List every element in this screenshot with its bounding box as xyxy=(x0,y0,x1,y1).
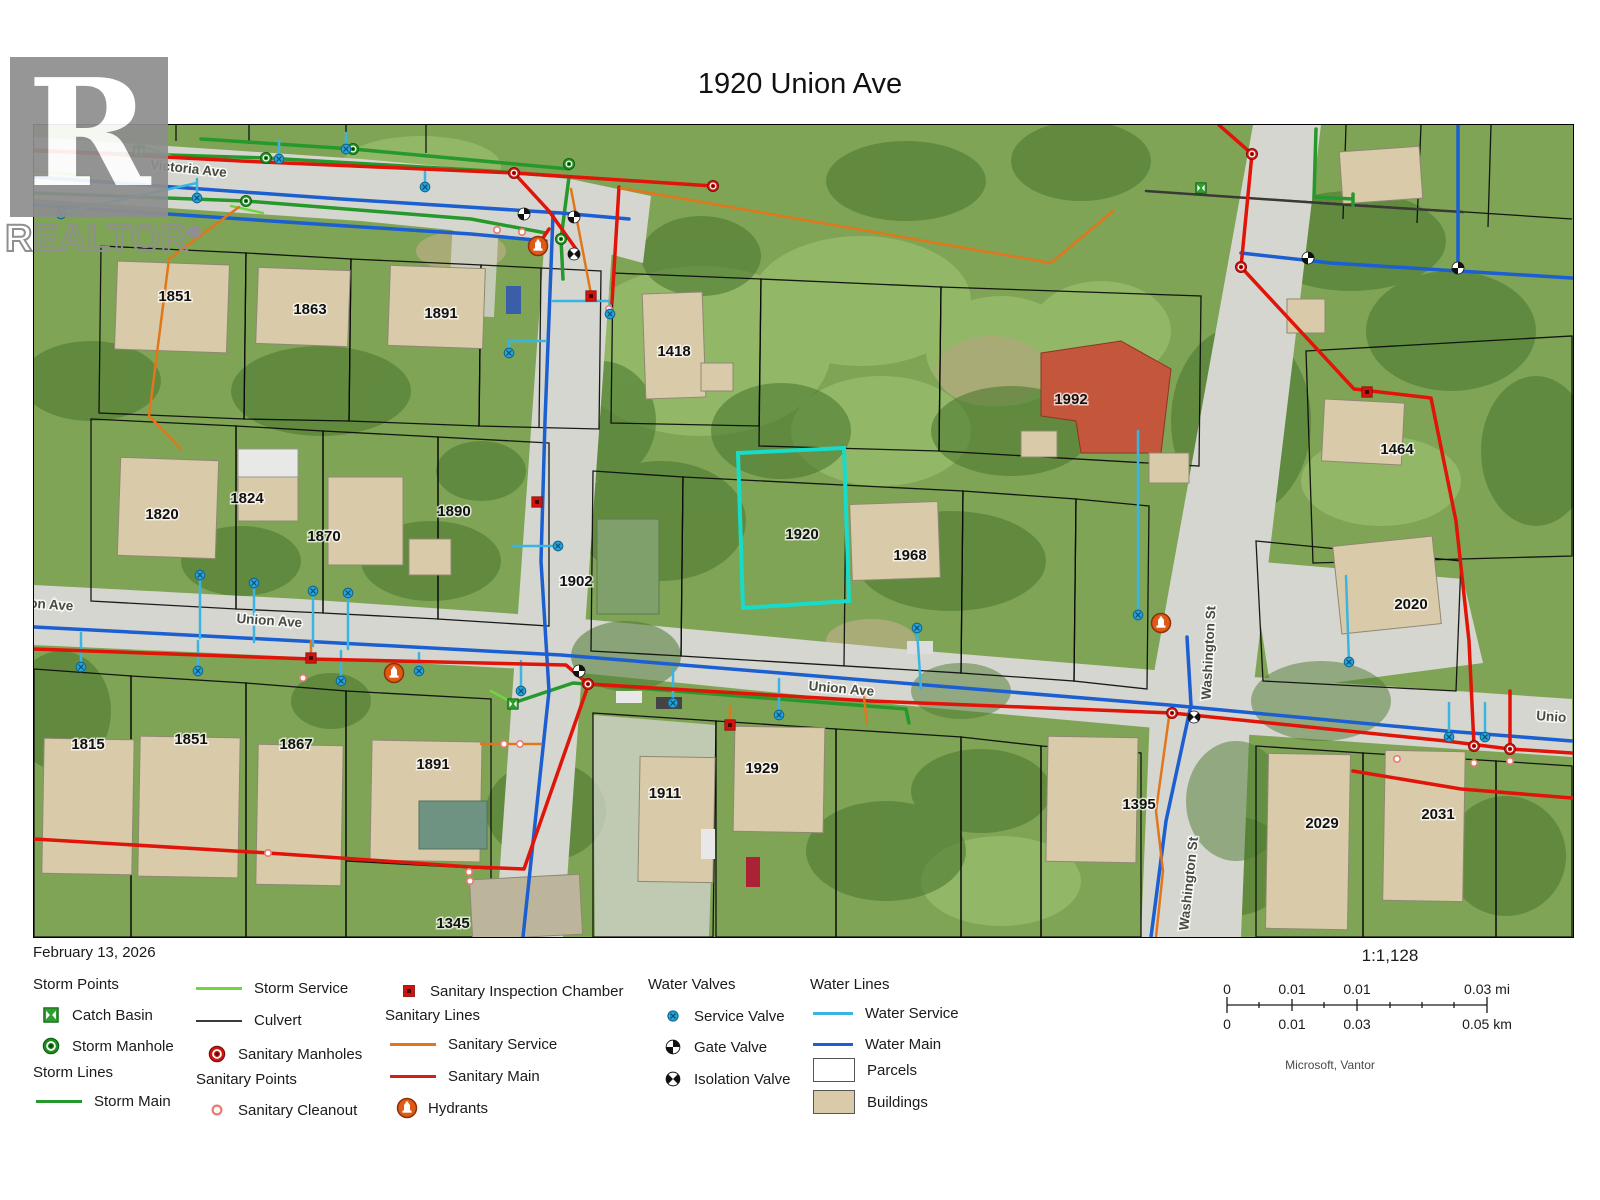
legend-item-sanitary-main: Sanitary Main xyxy=(390,1068,540,1085)
buildings-swatch xyxy=(813,1090,855,1114)
page-title: 1920 Union Ave xyxy=(0,68,1600,101)
parcel-number-label: 1891 xyxy=(424,305,457,322)
isolation-valve-icon xyxy=(1188,711,1200,723)
parcel-number-label: 1863 xyxy=(293,301,326,318)
parcel-number-label: 1418 xyxy=(657,343,690,360)
service-valve-icon xyxy=(605,309,615,319)
service-valve-icon xyxy=(1480,732,1490,742)
parcel-number-label: 2029 xyxy=(1305,815,1338,832)
storm-manhole-icon xyxy=(260,152,271,163)
sanitary-manhole-icon xyxy=(206,1043,228,1065)
svg-text:0.03 mi: 0.03 mi xyxy=(1464,981,1510,997)
isolation-valve-icon xyxy=(662,1068,684,1090)
storm-manhole-icon xyxy=(240,195,251,206)
legend-item-service-valve: Service Valve xyxy=(662,1005,785,1027)
svg-text:0.01: 0.01 xyxy=(1278,1016,1305,1032)
parcels-swatch xyxy=(813,1058,855,1082)
gate-valve-icon xyxy=(662,1036,684,1058)
legend-item-water-main: Water Main xyxy=(813,1036,941,1053)
parcel-number-label: 1891 xyxy=(416,756,449,773)
service-valve-icon xyxy=(414,666,424,676)
legend-heading-sanitary-lines: Sanitary Lines xyxy=(385,1007,480,1024)
parcel-number-label: 1395 xyxy=(1122,796,1155,813)
parcel-number-label: 1920 xyxy=(785,526,818,543)
sanitary-inspection-chamber-icon xyxy=(398,980,420,1002)
sanitary-manhole-icon xyxy=(707,180,718,191)
storm-manhole-icon xyxy=(40,1035,62,1057)
parcel-number-label: 1851 xyxy=(158,288,191,305)
sanitary-service-swatch xyxy=(390,1043,436,1046)
service-valve-icon xyxy=(195,570,205,580)
svg-text:0.05 km: 0.05 km xyxy=(1462,1016,1512,1032)
service-valve-icon xyxy=(1344,657,1354,667)
service-valve-icon xyxy=(516,686,526,696)
parcel-number-label: 1345 xyxy=(436,915,469,932)
service-valve-icon xyxy=(336,676,346,686)
cleanout-icon xyxy=(519,229,525,235)
legend-heading-sanitary-points: Sanitary Points xyxy=(196,1071,297,1088)
sanitary-main-swatch xyxy=(390,1075,436,1078)
legend-item-water-service: Water Service xyxy=(813,1005,959,1022)
realtor-logo: R xyxy=(10,57,168,217)
parcel-number-label: 1851 xyxy=(174,731,207,748)
service-valve-icon xyxy=(1133,610,1143,620)
service-valve-icon xyxy=(343,588,353,598)
street-label: Unio xyxy=(1536,708,1567,725)
svg-text:0: 0 xyxy=(1223,1016,1231,1032)
legend-item-sanitary-cleanout: Sanitary Cleanout xyxy=(206,1099,357,1121)
storm-service-swatch xyxy=(196,987,242,990)
inspection-chamber-icon xyxy=(1362,387,1372,397)
inspection-chamber-icon xyxy=(532,497,542,507)
service-valve-icon xyxy=(662,1005,684,1027)
legend-item-parcels: Parcels xyxy=(813,1058,917,1082)
parcel-number-label: 1824 xyxy=(230,490,264,507)
gate-valve-icon xyxy=(518,208,530,220)
service-valve-icon xyxy=(420,182,430,192)
cleanout-icon xyxy=(494,227,500,233)
parcel-number-label: 1815 xyxy=(71,736,104,753)
service-valve-icon xyxy=(504,348,514,358)
cleanout-icon xyxy=(517,741,523,747)
service-valve-icon xyxy=(76,662,86,672)
sanitary-manhole-icon xyxy=(1468,740,1479,751)
cleanout-icon xyxy=(1507,758,1513,764)
hydrant-icon xyxy=(396,1097,418,1119)
legend-heading-storm-points: Storm Points xyxy=(33,976,119,993)
sanitary-manhole-icon xyxy=(1166,707,1177,718)
parcel-number-label: 1911 xyxy=(649,785,682,802)
svg-text:0.03: 0.03 xyxy=(1343,1016,1370,1032)
water-main-swatch xyxy=(813,1043,853,1046)
water-service-swatch xyxy=(813,1012,853,1015)
svg-text:0: 0 xyxy=(1223,981,1231,997)
cleanout-icon xyxy=(467,878,473,884)
service-valve-icon xyxy=(774,710,784,720)
service-valve-icon xyxy=(249,578,259,588)
isolation-valve-icon xyxy=(568,248,580,260)
sanitary-cleanout-icon xyxy=(206,1099,228,1121)
parcel-number-label: 1968 xyxy=(893,547,926,564)
catch-basin-icon xyxy=(40,1004,62,1026)
legend-item-gate-valve: Gate Valve xyxy=(662,1036,767,1058)
map-date: February 13, 2026 xyxy=(33,944,156,961)
catch-basin-icon xyxy=(1196,183,1206,193)
scale-ratio: 1:1,128 xyxy=(1200,946,1580,966)
cleanout-icon xyxy=(1394,756,1400,762)
hydrant-icon xyxy=(529,237,548,256)
legend-item-storm-service: Storm Service xyxy=(196,980,348,997)
parcel-number-label: 2031 xyxy=(1421,806,1454,823)
legend-item-storm-main: Storm Main xyxy=(36,1093,171,1110)
gate-valve-icon xyxy=(1302,252,1314,264)
service-valve-icon xyxy=(341,144,351,154)
parcel-number-label: 1867 xyxy=(279,736,312,753)
legend-item-sanitary-inspection-chamber: Sanitary Inspection Chamber xyxy=(398,980,623,1002)
svg-text:0.01: 0.01 xyxy=(1278,981,1305,997)
inspection-chamber-icon xyxy=(586,291,596,301)
legend-item-isolation-valve: Isolation Valve xyxy=(662,1068,790,1090)
utility-map: Victoria Aveon AveUnion AveUnion AveUnio… xyxy=(33,124,1574,938)
inspection-chamber-icon xyxy=(306,653,316,663)
legend-item-hydrants: Hydrants xyxy=(396,1097,488,1119)
storm-manhole-icon xyxy=(555,233,566,244)
legend-item-buildings: Buildings xyxy=(813,1090,928,1114)
parcel-number-label: 1992 xyxy=(1054,391,1087,408)
legend-item-sanitary-manholes: Sanitary Manholes xyxy=(206,1043,362,1065)
service-valve-icon xyxy=(308,586,318,596)
sanitary-manhole-icon xyxy=(582,678,593,689)
parcel-number-label: 1820 xyxy=(145,506,178,523)
parcel-number-label: 1929 xyxy=(745,760,778,777)
parcel-number-label: 2020 xyxy=(1394,596,1427,613)
service-valve-icon xyxy=(553,541,563,551)
service-valve-icon xyxy=(912,623,922,633)
inspection-chamber-icon xyxy=(725,720,735,730)
gate-valve-icon xyxy=(1452,262,1464,274)
green-roof-building xyxy=(597,519,659,614)
cleanout-icon xyxy=(265,850,271,856)
parcel-number-label: 1902 xyxy=(559,573,592,590)
legend-item-sanitary-service: Sanitary Service xyxy=(390,1036,557,1053)
parcel-number-label: 1464 xyxy=(1380,441,1414,458)
service-valve-icon xyxy=(1444,732,1454,742)
service-valve-icon xyxy=(193,666,203,676)
cleanout-icon xyxy=(300,675,306,681)
realtor-logo-r: R xyxy=(28,63,151,204)
cleanout-icon xyxy=(466,869,472,875)
legend-heading-water-valves: Water Valves xyxy=(648,976,736,993)
street-label: on Ave xyxy=(33,595,74,613)
service-valve-icon xyxy=(274,154,284,164)
legend-item-catch-basin: Catch Basin xyxy=(40,1004,153,1026)
realtor-wordmark: REALTOR® xyxy=(5,218,201,261)
legend-heading-storm-lines: Storm Lines xyxy=(33,1064,113,1081)
scale-bar: 0 0.01 0.01 0.03 mi 0 0.01 0.03 0.05 km xyxy=(1200,970,1580,1040)
sanitary-manhole-icon xyxy=(1235,261,1246,272)
service-valve-icon xyxy=(668,698,678,708)
cleanout-icon xyxy=(1471,760,1477,766)
sanitary-manhole-icon xyxy=(1246,148,1257,159)
legend-heading-water-lines: Water Lines xyxy=(810,976,889,993)
storm-manhole-icon xyxy=(563,158,574,169)
hydrant-icon xyxy=(1152,614,1171,633)
parcel-number-label: 1870 xyxy=(307,528,340,545)
gate-valve-icon xyxy=(573,665,585,677)
parcel-number-label: 1890 xyxy=(437,503,470,520)
cleanout-icon xyxy=(501,741,507,747)
culvert-swatch xyxy=(196,1020,242,1022)
sanitary-manhole-icon xyxy=(508,167,519,178)
storm-main-swatch xyxy=(36,1100,82,1103)
legend-item-storm-manhole: Storm Manhole xyxy=(40,1035,174,1057)
map-attribution: Microsoft, Vantor xyxy=(1235,1058,1425,1072)
catch-basin-icon xyxy=(508,699,518,709)
svg-text:0.01: 0.01 xyxy=(1343,981,1370,997)
legend-item-culvert: Culvert xyxy=(196,1012,302,1029)
service-valve-icon xyxy=(192,193,202,203)
sanitary-manhole-icon xyxy=(1504,743,1515,754)
hydrant-icon xyxy=(385,664,404,683)
gate-valve-icon xyxy=(568,211,580,223)
